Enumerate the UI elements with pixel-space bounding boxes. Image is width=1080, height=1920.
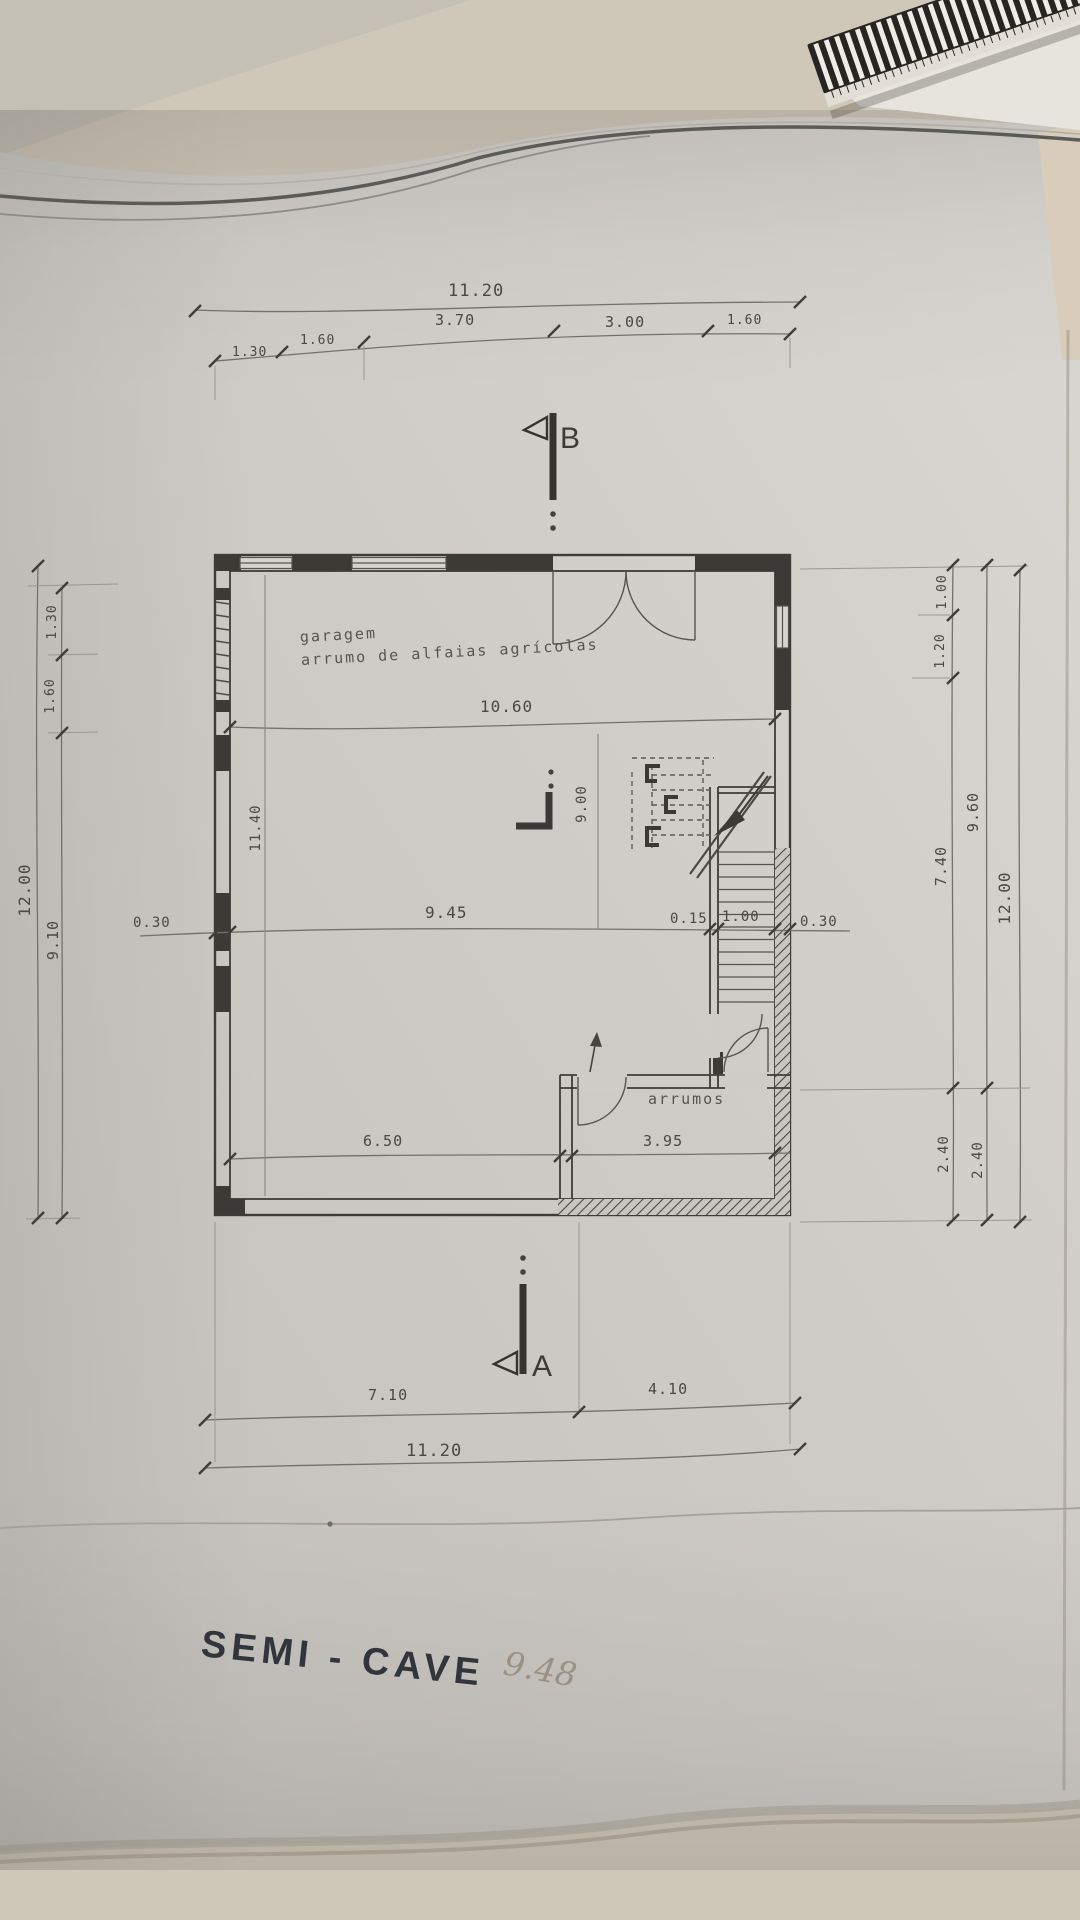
dim-left-total: 12.00 (15, 863, 34, 916)
dim-top-2: 1.60 (300, 333, 335, 348)
dim-right-inner-2: 1.20 (933, 633, 948, 668)
dim-bottom-int-1: 6.50 (363, 1132, 403, 1150)
dim-top-1: 1.30 (232, 345, 267, 360)
storage-label: arrumos (648, 1090, 725, 1108)
dim-right-mid-2: 2.40 (970, 1141, 986, 1179)
dim-bottom-1: 7.10 (368, 1386, 408, 1404)
dim-mid-3: 0.15 (670, 911, 708, 927)
dim-right-inner-4: 2.40 (936, 1135, 952, 1173)
dim-top-4: 3.00 (605, 313, 645, 331)
dim-left-3: 9.10 (44, 920, 62, 960)
dim-right-inner-3: 7.40 (932, 846, 950, 886)
dim-mid-1: 0.30 (133, 915, 171, 931)
photo-of-floor-plan: 11.20 1.30 1.60 3.70 3.00 1.60 10.60 0.3… (0, 0, 1080, 1920)
section-B-label: B (560, 422, 580, 455)
dim-mid-2: 9.45 (425, 903, 468, 922)
dim-bottom-total: 11.20 (406, 1441, 462, 1461)
paper-blemish-dot (327, 1521, 332, 1526)
dim-interior-height-left: 11.40 (248, 804, 264, 851)
dim-top-5: 1.60 (727, 313, 762, 328)
dim-mid-5: 0.30 (800, 914, 838, 930)
floor-plan-photo-svg: 11.20 1.30 1.60 3.70 3.00 1.60 10.60 0.3… (0, 0, 1080, 1920)
dim-left-2: 1.60 (43, 678, 58, 713)
dim-right-mid-1: 9.60 (964, 792, 982, 832)
dim-top-total: 11.20 (448, 281, 504, 301)
dim-top-3: 3.70 (435, 311, 475, 329)
dim-bottom-int-2: 3.95 (643, 1132, 683, 1150)
section-A-label: A (532, 1350, 552, 1383)
dim-left-1: 1.30 (45, 604, 60, 639)
dim-interior-width: 10.60 (480, 697, 533, 716)
dim-interior-height-mid: 9.00 (574, 785, 590, 823)
dim-bottom-2: 4.10 (648, 1380, 688, 1398)
dim-right-total: 12.00 (995, 871, 1014, 924)
dim-right-inner-1: 1.00 (935, 574, 950, 609)
dim-mid-4: 1.00 (722, 909, 760, 925)
